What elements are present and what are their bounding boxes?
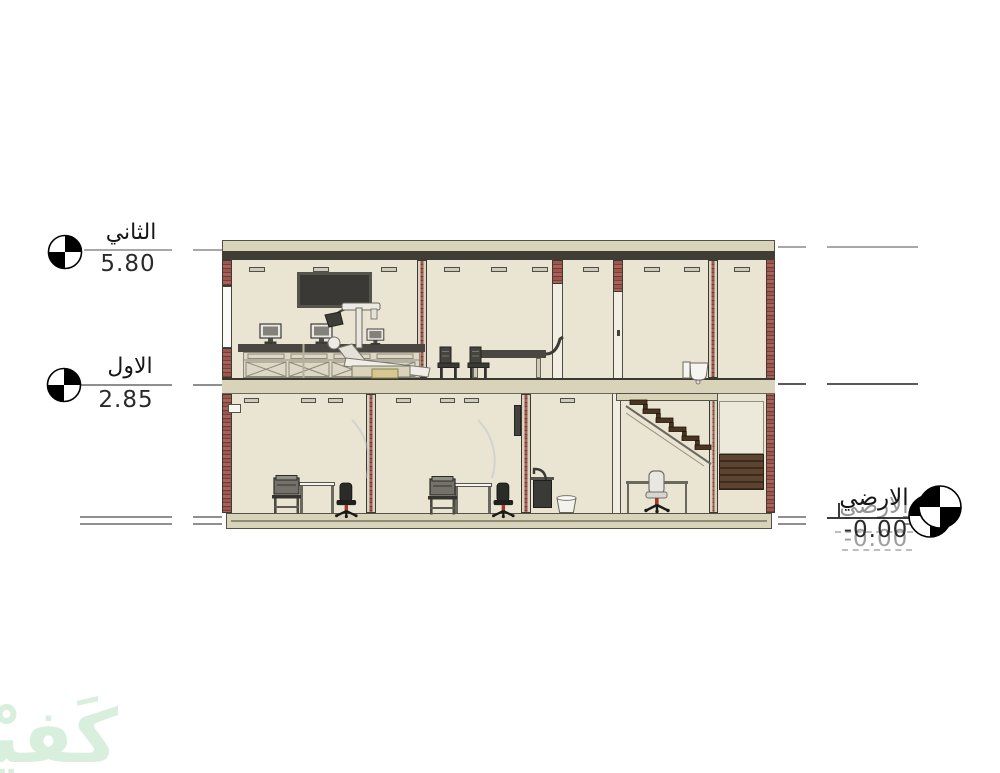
ceiling-light	[301, 398, 316, 403]
level-line	[193, 516, 222, 518]
desk-top	[299, 482, 335, 486]
watermark-logo: كَفيْل	[0, 700, 118, 773]
ceiling-light	[583, 267, 599, 272]
level-line	[827, 383, 918, 385]
ceiling-light	[464, 398, 479, 403]
upper-partition-1	[552, 260, 563, 378]
ceiling-light	[444, 267, 460, 272]
level-line	[778, 246, 806, 248]
ceiling-light	[734, 267, 750, 272]
counter-cabinets	[243, 352, 420, 378]
desk-leg	[455, 487, 458, 513]
ceiling-light	[396, 398, 411, 403]
stair-landing-beam	[616, 393, 718, 401]
ground-slab-joint	[231, 520, 767, 522]
desk-leg	[300, 486, 303, 513]
level-line	[193, 523, 222, 525]
sink-cabinet	[533, 480, 552, 508]
ceiling-light	[684, 267, 700, 272]
level-line	[193, 384, 222, 386]
left-wall-upper-brick-2	[222, 348, 232, 378]
ground-slab	[226, 513, 772, 529]
exam-table-leg	[473, 358, 478, 378]
wall-mounted-panel	[514, 405, 521, 436]
level-first-elevation: 2.85	[92, 388, 160, 413]
ceiling-light	[328, 398, 343, 403]
wall-tv	[297, 272, 372, 308]
upper-partition-2	[613, 260, 623, 378]
partition-tick	[617, 330, 620, 336]
level-ground-label: الارضي	[826, 486, 922, 511]
level-line	[193, 249, 222, 251]
ceiling-light	[244, 398, 259, 403]
level-line	[778, 523, 806, 525]
upper-column-2	[708, 260, 718, 378]
desk-leg	[331, 486, 334, 513]
ceiling-light	[644, 267, 660, 272]
ground-column-1	[366, 394, 376, 513]
upper-partition-1-brick-top	[552, 260, 563, 284]
level-first-label: الاول	[94, 355, 166, 379]
level-second-elevation: 5.80	[94, 252, 162, 277]
ceiling-light	[249, 267, 265, 272]
ground-partition-1	[612, 394, 621, 513]
exam-table-leg	[536, 358, 541, 378]
ground-column-3	[709, 394, 718, 513]
desk-leg	[685, 484, 687, 513]
level-datum-first	[48, 369, 81, 402]
level-line	[827, 246, 918, 248]
ceiling-light	[532, 267, 548, 272]
architectural-section-drawing: الثاني 5.80 الاول 2.85 الارضي الارضي -0.…	[0, 0, 1000, 773]
left-wall-upper-brick	[222, 260, 232, 286]
ceiling-light	[491, 267, 507, 272]
level-line	[81, 384, 172, 386]
shaft-panel	[719, 401, 764, 454]
level-ground-elevation: -0.00	[834, 518, 918, 543]
first-floor-slab	[222, 378, 775, 394]
understair-desk-top	[626, 481, 688, 484]
louver-shutter	[719, 454, 764, 490]
upper-partition-2-brick-top	[613, 260, 623, 292]
level-datum-second	[49, 236, 82, 269]
desk-top	[454, 483, 492, 487]
level-line	[80, 516, 172, 518]
ground-column-2	[521, 394, 531, 513]
ceiling-light	[381, 267, 397, 272]
counter-top	[238, 344, 425, 352]
roof-band	[222, 251, 775, 260]
desk-leg	[627, 484, 629, 513]
left-wall-window	[222, 286, 232, 348]
ceiling-light	[440, 398, 455, 403]
desk-leg	[488, 487, 491, 513]
level-line	[778, 516, 806, 518]
wall-sconce	[228, 404, 241, 413]
ceiling-light	[560, 398, 575, 403]
level-line	[778, 383, 806, 385]
exam-table-top	[470, 350, 546, 358]
level-line	[80, 523, 172, 525]
level-second-label: الثاني	[92, 221, 170, 245]
